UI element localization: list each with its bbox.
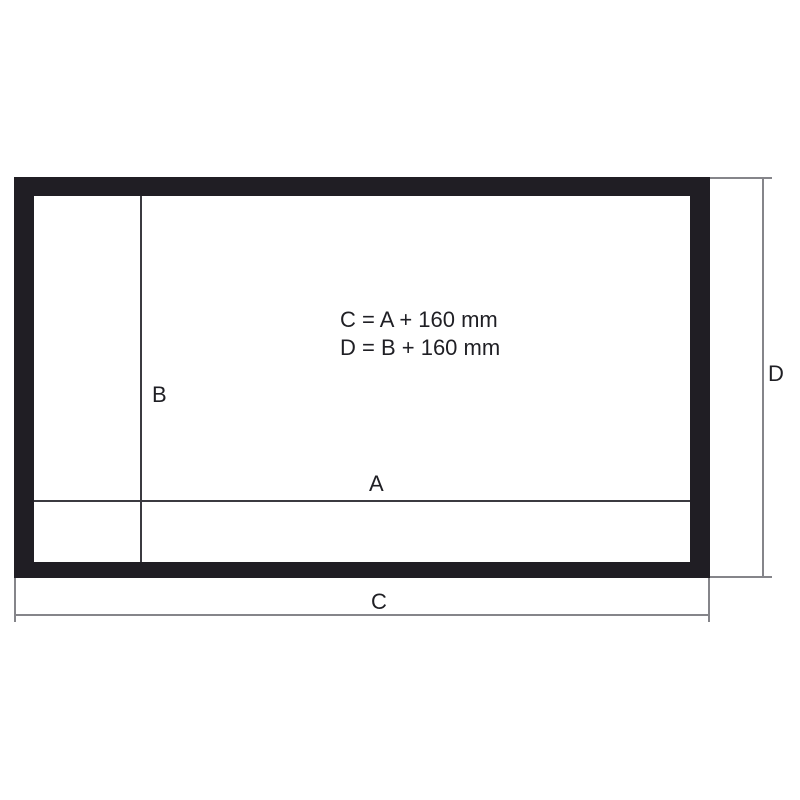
label-outer-height-d: D xyxy=(768,363,784,385)
diagram-canvas: B A C D C = A + 160 mm D = B + 160 mm xyxy=(0,0,800,800)
dimension-c-left-tick xyxy=(14,578,16,622)
label-outer-width-c: C xyxy=(371,591,387,613)
formula-d: D = B + 160 mm xyxy=(340,334,500,362)
dimension-line-c xyxy=(14,614,710,616)
screen-frame xyxy=(14,177,710,578)
label-inner-width-a: A xyxy=(369,473,384,495)
formula-c: C = A + 160 mm xyxy=(340,306,500,334)
inner-horizontal-reference-line xyxy=(34,500,690,502)
dimension-d-bottom-tick xyxy=(710,576,772,578)
dimension-formulas: C = A + 160 mm D = B + 160 mm xyxy=(340,306,500,362)
label-inner-height-b: B xyxy=(152,384,167,406)
inner-vertical-reference-line xyxy=(140,196,142,562)
dimension-c-right-tick xyxy=(708,578,710,622)
dimension-d-top-tick xyxy=(710,177,772,179)
dimension-line-d xyxy=(762,177,764,578)
